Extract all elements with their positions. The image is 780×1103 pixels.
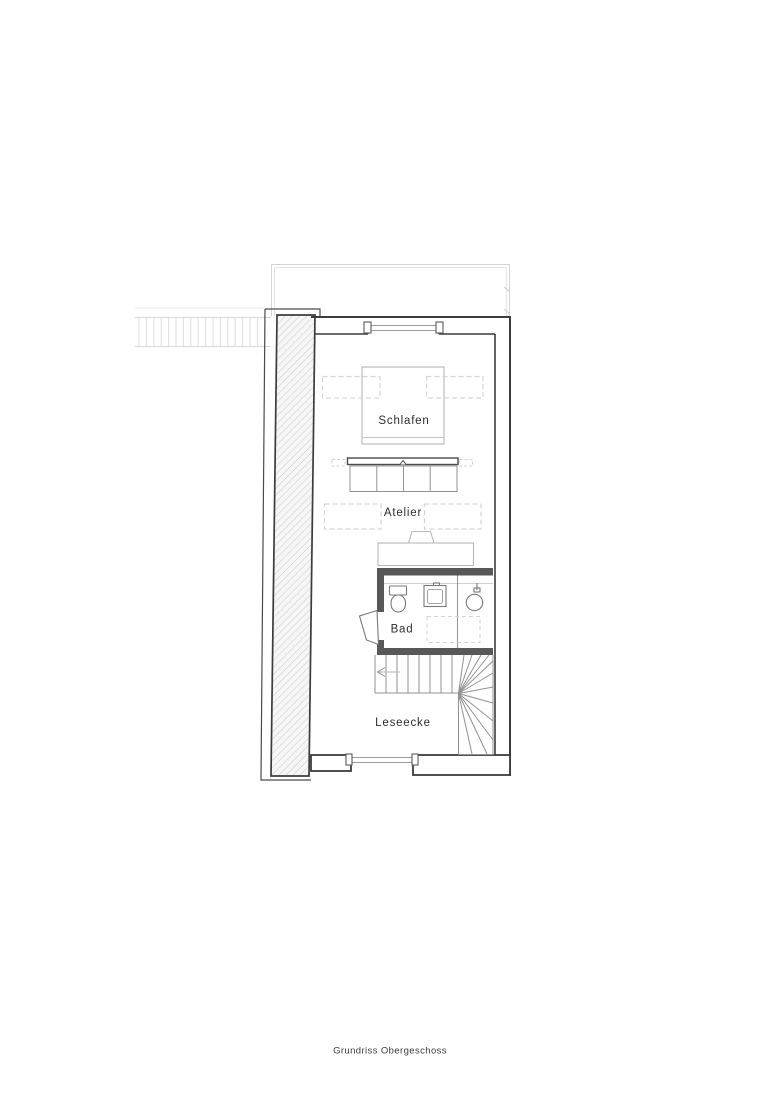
drawing-caption: Grundriss Obergeschoss xyxy=(333,1046,447,1057)
toilet xyxy=(390,586,407,612)
window-north xyxy=(364,322,443,333)
overhead-dashed-right xyxy=(425,504,482,529)
neighbor-wall-hatch xyxy=(135,308,271,347)
staircase xyxy=(375,655,493,755)
floor-plan-canvas: Schlafen Atelier Bad Leseecke Grundriss … xyxy=(0,0,780,1103)
window-south xyxy=(346,754,418,765)
sink xyxy=(424,583,446,607)
shower-overhead-dashed xyxy=(427,617,480,643)
party-wall-hatched xyxy=(261,309,320,780)
bathroom xyxy=(360,568,494,655)
desk xyxy=(378,543,474,566)
overhead-dashed-left xyxy=(325,504,382,529)
room-label-bad: Bad xyxy=(391,624,414,636)
room-label-schlafen: Schlafen xyxy=(378,415,429,427)
bed xyxy=(362,367,444,444)
bathroom-door-leaf xyxy=(360,611,379,645)
bedroom-furniture xyxy=(323,367,484,444)
sideboard xyxy=(332,458,473,492)
room-label-atelier: Atelier xyxy=(384,507,422,519)
room-label-leseecke: Leseecke xyxy=(375,717,431,729)
floor-plan-page: Schlafen Atelier Bad Leseecke Grundriss … xyxy=(0,0,780,1103)
chair xyxy=(409,532,435,544)
winder-treads xyxy=(459,655,494,754)
